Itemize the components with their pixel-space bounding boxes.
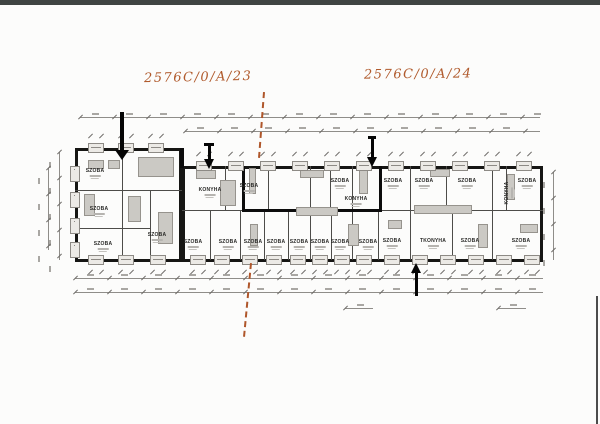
window-tick xyxy=(452,152,457,157)
dimension-number xyxy=(435,127,442,129)
dimension-number xyxy=(357,304,364,306)
room-area-text xyxy=(364,249,372,250)
dimension-number xyxy=(401,127,408,129)
window-pane-line xyxy=(121,259,131,260)
room-name-text: SZOBA xyxy=(512,238,531,244)
room-label-szoba: SZOBA xyxy=(415,179,434,189)
room-area-text xyxy=(523,188,531,189)
window-symbol xyxy=(452,161,468,171)
room-area-text xyxy=(428,245,439,247)
window-tick xyxy=(196,152,201,157)
window-symbol xyxy=(388,161,404,171)
room-name-text: SZOBA xyxy=(458,178,477,184)
room-area-text xyxy=(517,248,525,249)
window-tick xyxy=(129,134,134,139)
window-tick xyxy=(451,270,456,275)
furniture-symbol xyxy=(359,170,368,194)
interior-wall xyxy=(150,190,151,260)
dimension-number xyxy=(155,288,162,290)
window-pane-line xyxy=(263,165,273,166)
window-tick xyxy=(463,152,468,157)
dimension-number xyxy=(333,127,340,129)
emphasis-arrow-down xyxy=(204,159,214,169)
room-name-text: SZOBA xyxy=(415,178,434,184)
room-label-szoba: SZOBA xyxy=(219,240,238,250)
room-label-szoba: SZOBA xyxy=(331,179,350,189)
dimension-number xyxy=(359,274,366,276)
room-area-text xyxy=(352,206,360,207)
room-area-text xyxy=(271,246,282,248)
window-pane-line xyxy=(269,259,279,260)
dimension-number xyxy=(223,288,230,290)
room-label-szoba: SZOBA xyxy=(94,242,113,252)
room-area-text xyxy=(245,193,253,194)
interior-wall xyxy=(75,190,182,191)
window-symbol xyxy=(516,161,532,171)
window-tick xyxy=(303,152,308,157)
dimension-number xyxy=(38,230,40,236)
room-area-text xyxy=(206,197,214,198)
dimension-number xyxy=(49,266,51,272)
dimension-number xyxy=(503,127,510,129)
room-area-text xyxy=(336,249,344,250)
scanned-floorplan-page: 2576C/0/A/23 2576C/0/A/24 SZOBASZOBASZOB… xyxy=(0,0,600,424)
window-tick xyxy=(99,270,104,275)
arrow-shaft xyxy=(371,136,374,158)
interior-wall xyxy=(492,210,493,260)
room-area-text xyxy=(419,185,430,187)
room-area-text xyxy=(248,246,259,248)
window-symbol xyxy=(292,161,308,171)
emphasis-arrow-down xyxy=(115,150,129,160)
window-symbol xyxy=(324,161,340,171)
dimension-number xyxy=(330,113,337,115)
window-tick xyxy=(214,270,219,275)
room-name-text: KONYHA xyxy=(504,182,510,205)
window-pane-line xyxy=(527,259,537,260)
room-name-text: SZOBA xyxy=(267,239,286,245)
window-tick xyxy=(129,270,134,275)
room-label-szoba: SZOBA xyxy=(461,239,480,249)
dimension-number xyxy=(223,274,230,276)
window-symbol xyxy=(150,255,166,265)
room-area-text xyxy=(294,246,305,248)
dimension-number xyxy=(189,288,196,290)
window-tick xyxy=(277,270,282,275)
window-symbol xyxy=(260,161,276,171)
interior-wall xyxy=(310,210,311,260)
room-label-szoba: SZOBA xyxy=(240,184,259,194)
window-symbol xyxy=(334,255,350,265)
window-pane-line xyxy=(337,259,347,260)
room-name-text: SZOBA xyxy=(518,178,537,184)
room-label-konyha: KONYHA xyxy=(505,182,515,205)
window-symbol xyxy=(88,255,104,265)
dimension-line xyxy=(48,168,49,250)
room-area-text xyxy=(351,203,362,205)
room-name-text: SZOBA xyxy=(461,238,480,244)
window-pane-line xyxy=(391,165,401,166)
window-pane-line xyxy=(499,259,509,260)
room-label-szoba: SZOBA xyxy=(86,169,105,179)
interior-wall xyxy=(210,210,211,260)
window-pane-line xyxy=(455,165,465,166)
dimension-number xyxy=(398,113,405,115)
emphasis-arrow-up xyxy=(411,263,421,273)
unit-divider-dashed-line xyxy=(258,92,265,158)
unit-divider-dashed-line xyxy=(243,263,252,337)
window-pane-line xyxy=(217,259,227,260)
window-tick xyxy=(260,152,265,157)
room-area-text xyxy=(511,188,513,199)
room-name-text: SZOBA xyxy=(86,168,105,174)
window-tick xyxy=(495,152,500,157)
window-tick xyxy=(228,152,233,157)
dimension-number xyxy=(257,288,264,290)
room-label-szoba: SZOBA xyxy=(148,233,167,243)
dimension-number xyxy=(92,113,99,115)
window-tick xyxy=(420,152,425,157)
window-symbol xyxy=(228,161,244,171)
window-tick xyxy=(312,270,317,275)
dimension-number xyxy=(427,274,434,276)
interior-wall xyxy=(122,150,123,260)
dimension-number xyxy=(299,127,306,129)
room-area-text xyxy=(462,185,473,187)
room-name-text: SZOBA xyxy=(219,239,238,245)
room-area-text xyxy=(516,245,527,247)
room-name-text: SZOBA xyxy=(290,239,309,245)
interior-wall xyxy=(410,210,411,260)
room-area-text xyxy=(244,190,255,192)
room-name-text: SZOBA xyxy=(240,183,259,189)
furniture-symbol xyxy=(300,170,324,178)
room-area-text xyxy=(315,246,326,248)
room-area-text xyxy=(272,249,280,250)
window-symbol xyxy=(356,255,372,265)
window-pane-line xyxy=(387,259,397,260)
room-area-text xyxy=(463,188,471,189)
room-area-text xyxy=(91,178,99,179)
window-tick xyxy=(159,134,164,139)
window-tick xyxy=(292,152,297,157)
room-label-szoba: SZOBA xyxy=(384,179,403,189)
window-pane-line xyxy=(471,259,481,260)
room-area-text xyxy=(189,249,197,250)
window-symbol xyxy=(290,255,306,265)
window-symbol xyxy=(384,255,400,265)
dimension-number xyxy=(466,113,473,115)
room-label-konyha: KONYHA xyxy=(199,188,222,198)
dimension-number xyxy=(543,208,545,214)
room-area-text xyxy=(295,249,303,250)
room-name-text: SZOBA xyxy=(148,232,167,238)
arrow-shaft xyxy=(120,112,124,151)
dimension-number xyxy=(495,288,502,290)
window-symbol xyxy=(484,161,500,171)
furniture-symbol xyxy=(478,224,488,248)
dimension-number xyxy=(325,288,332,290)
window-tick xyxy=(527,152,532,157)
dimension-number xyxy=(291,274,298,276)
window-tick xyxy=(148,134,153,139)
window-tick xyxy=(334,270,339,275)
window-tick xyxy=(161,270,166,275)
room-area-text xyxy=(224,249,232,250)
furniture-symbol xyxy=(296,207,338,216)
room-label-tkonyha: TKONYHA xyxy=(420,239,446,249)
room-area-text xyxy=(336,188,344,189)
window-pane-line xyxy=(74,195,75,196)
room-area-text xyxy=(99,251,107,252)
window-symbol xyxy=(88,143,104,153)
window-pane-line xyxy=(443,259,453,260)
room-name-text: SZOBA xyxy=(383,238,402,244)
window-pane-line xyxy=(231,165,241,166)
room-label-szoba: SZOBA xyxy=(90,207,109,217)
window-pane-line xyxy=(359,259,369,260)
emphasis-arrow-down xyxy=(367,157,377,167)
room-name-text: KONYHA xyxy=(345,196,368,202)
window-pane-line xyxy=(74,221,75,222)
window-symbol xyxy=(148,143,164,153)
room-name-text: SZOBA xyxy=(244,239,263,245)
dimension-number xyxy=(291,288,298,290)
window-symbol xyxy=(70,192,80,208)
window-pane-line xyxy=(153,259,163,260)
interior-wall xyxy=(378,210,379,260)
room-label-szoba: SZOBA xyxy=(383,239,402,249)
dimension-number xyxy=(87,288,94,290)
room-area-text xyxy=(466,248,474,249)
window-symbol xyxy=(70,242,80,258)
dimension-number xyxy=(38,178,40,184)
room-area-text xyxy=(223,246,234,248)
room-area-text xyxy=(389,188,397,189)
room-label-szoba: SZOBA xyxy=(458,179,477,189)
dimension-number xyxy=(38,204,40,210)
dimension-number xyxy=(500,113,507,115)
room-area-text xyxy=(388,248,396,249)
interior-wall xyxy=(410,166,411,210)
dimension-line xyxy=(75,292,543,293)
room-area-text xyxy=(387,245,398,247)
dimension-line xyxy=(185,131,540,132)
dimension-number xyxy=(432,113,439,115)
window-pane-line xyxy=(293,259,303,260)
room-name-text: TKONYHA xyxy=(420,238,446,244)
furniture-symbol xyxy=(220,180,236,206)
window-pane-line xyxy=(91,259,101,260)
window-pane-line xyxy=(415,259,425,260)
room-area-text xyxy=(316,249,324,250)
dimension-line xyxy=(59,152,60,260)
arrow-topbar xyxy=(368,136,376,139)
window-pane-line xyxy=(74,169,75,170)
window-pane-line xyxy=(193,259,203,260)
room-area-text xyxy=(152,239,163,241)
room-label-szoba: SZOBA xyxy=(267,240,286,250)
dimension-number xyxy=(359,288,366,290)
room-area-text xyxy=(94,213,105,215)
room-name-text: SZOBA xyxy=(384,178,403,184)
window-tick xyxy=(239,152,244,157)
interior-wall xyxy=(264,210,265,260)
room-area-text xyxy=(420,188,428,189)
room-name-text: SZOBA xyxy=(94,241,113,247)
window-tick xyxy=(345,270,350,275)
window-tick xyxy=(356,152,361,157)
room-name-text: KONYHA xyxy=(199,187,222,193)
unit-boundary-marker xyxy=(180,148,184,168)
window-tick xyxy=(266,270,271,275)
window-tick xyxy=(399,152,404,157)
room-area-text xyxy=(335,246,346,248)
dimension-number xyxy=(296,113,303,115)
dimension-number xyxy=(265,127,272,129)
window-tick xyxy=(201,270,206,275)
window-symbol xyxy=(496,255,512,265)
room-area-text xyxy=(514,189,515,197)
dimension-number xyxy=(543,182,545,188)
window-symbol xyxy=(440,255,456,265)
dimension-number xyxy=(510,304,517,306)
window-pane-line xyxy=(487,165,497,166)
arrow-shaft xyxy=(415,272,418,296)
room-area-text xyxy=(388,185,399,187)
window-symbol xyxy=(70,218,80,234)
room-area-text xyxy=(188,246,199,248)
window-tick xyxy=(484,152,489,157)
dimension-number xyxy=(197,127,204,129)
window-tick xyxy=(242,270,247,275)
window-pane-line xyxy=(519,165,529,166)
room-area-text xyxy=(522,185,533,187)
room-area-text xyxy=(153,242,161,243)
dimension-line xyxy=(553,172,554,260)
room-label-szoba: SZOBA xyxy=(331,240,350,250)
window-pane-line xyxy=(74,245,75,246)
window-symbol xyxy=(118,255,134,265)
dimension-number xyxy=(126,113,133,115)
window-pane-line xyxy=(315,259,325,260)
room-label-szoba: SZOBA xyxy=(518,179,537,189)
dimension-number xyxy=(228,113,235,115)
window-pane-line xyxy=(91,147,101,148)
window-tick xyxy=(440,270,445,275)
room-name-text: SZOBA xyxy=(331,178,350,184)
room-name-text: SZOBA xyxy=(331,239,350,245)
window-symbol xyxy=(420,161,436,171)
room-label-konyha: KONYHA xyxy=(345,197,368,207)
window-pane-line xyxy=(423,165,433,166)
room-label-szoba: SZOBA xyxy=(359,240,378,250)
window-symbol xyxy=(190,255,206,265)
dimension-number xyxy=(364,113,371,115)
dimension-number xyxy=(461,274,468,276)
interior-wall xyxy=(492,166,493,210)
interior-wall xyxy=(75,228,150,229)
window-tick xyxy=(431,152,436,157)
room-name-text: SZOBA xyxy=(311,239,330,245)
window-pane-line xyxy=(295,165,305,166)
dimension-line xyxy=(345,308,373,309)
floorplan-drawing: SZOBASZOBASZOBASZOBAKONYHASZOBASZOBAKONY… xyxy=(0,0,600,424)
interior-wall xyxy=(452,210,453,260)
dimension-line xyxy=(75,278,543,279)
interior-wall xyxy=(268,166,269,210)
room-name-text: SZOBA xyxy=(359,239,378,245)
room-area-text xyxy=(249,249,257,250)
dimension-number xyxy=(469,127,476,129)
room-area-text xyxy=(205,194,216,196)
room-label-szoba: SZOBA xyxy=(512,239,531,249)
furniture-symbol xyxy=(128,196,141,222)
room-area-text xyxy=(90,175,101,177)
dimension-number xyxy=(461,288,468,290)
dimension-number xyxy=(393,274,400,276)
room-area-text xyxy=(465,245,476,247)
window-tick xyxy=(301,270,306,275)
dimension-number xyxy=(160,113,167,115)
window-tick xyxy=(388,152,393,157)
room-area-text xyxy=(95,216,103,217)
dimension-number xyxy=(543,260,545,266)
furniture-symbol xyxy=(388,220,402,229)
window-tick xyxy=(384,270,389,275)
furniture-symbol xyxy=(520,224,538,233)
furniture-symbol xyxy=(108,160,120,169)
dimension-number xyxy=(367,127,374,129)
window-symbol xyxy=(312,255,328,265)
dimension-number xyxy=(194,113,201,115)
window-symbol xyxy=(524,255,540,265)
window-pane-line xyxy=(327,165,337,166)
window-symbol xyxy=(214,255,230,265)
furniture-symbol xyxy=(138,157,174,177)
room-label-szoba: SZOBA xyxy=(184,240,203,250)
room-area-text xyxy=(98,248,109,250)
window-tick xyxy=(367,270,372,275)
window-tick xyxy=(99,134,104,139)
window-tick xyxy=(335,152,340,157)
window-tick xyxy=(324,152,329,157)
room-label-szoba: SZOBA xyxy=(244,240,263,250)
arrow-topbar xyxy=(204,143,214,146)
interior-wall xyxy=(240,210,241,260)
window-tick xyxy=(516,152,521,157)
window-tick xyxy=(479,270,484,275)
dimension-number xyxy=(257,274,264,276)
window-tick xyxy=(88,134,93,139)
window-tick xyxy=(535,270,540,275)
dimension-number xyxy=(121,274,128,276)
dimension-line xyxy=(498,308,526,309)
window-tick xyxy=(271,152,276,157)
room-name-text: SZOBA xyxy=(90,206,109,212)
interior-wall xyxy=(331,210,332,260)
room-area-text xyxy=(363,246,374,248)
window-pane-line xyxy=(151,147,161,148)
dimension-number xyxy=(38,256,40,262)
room-name-text: SZOBA xyxy=(184,239,203,245)
window-tick xyxy=(468,270,473,275)
unit-boundary-marker xyxy=(379,166,382,212)
dimension-number xyxy=(534,113,541,115)
window-pane-line xyxy=(245,259,255,260)
window-tick xyxy=(507,270,512,275)
furniture-symbol xyxy=(414,205,472,214)
